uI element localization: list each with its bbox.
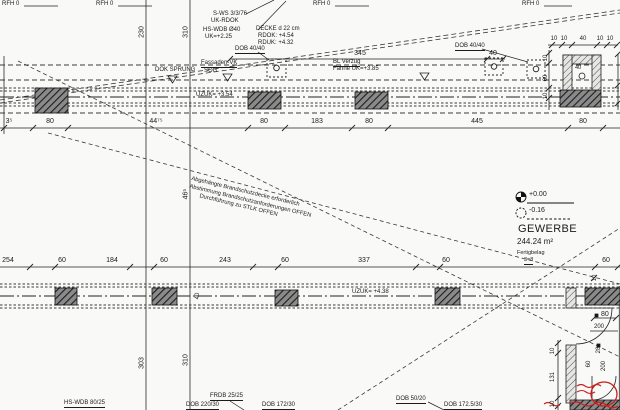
dim-bot-2: 184 <box>106 257 118 264</box>
dim-bot-0: 254 <box>2 257 14 264</box>
vdim-310-top: 310 <box>183 26 190 38</box>
fahne-uk-label: Fahne UK=+3.85 <box>333 66 379 72</box>
wall-band-upper <box>0 65 620 113</box>
dim-bot-3: 60 <box>160 257 168 264</box>
vdim-303: 303 <box>139 357 146 369</box>
fassaden-vk-label: Fassaden-VK <box>201 60 237 68</box>
vdim-cross-40: 40 <box>195 293 201 300</box>
column-detail-squares <box>267 58 545 78</box>
vdim-310-bot: 310 <box>183 354 190 366</box>
dim-top-5: 80 <box>365 118 373 125</box>
dim-bot-5: 60 <box>281 257 289 264</box>
level-zero-value: +0.00 <box>529 191 547 198</box>
dob4040-label-2: DOB 40/40 <box>455 43 485 51</box>
footer-label-dob50: DOB 50/20 <box>396 396 426 404</box>
room-area: 244.24 m² <box>517 238 553 246</box>
note-uk: UK=+2.25 <box>205 34 232 40</box>
note-decke: DECKE d 22 cm <box>256 26 300 32</box>
footer-label-dob220: DOB 220/30 <box>186 402 219 410</box>
dim-row-lower <box>0 264 620 270</box>
dim-top-7: 80 <box>579 118 587 125</box>
door-dim-80: 80 <box>601 311 609 318</box>
note-rdok: RDOK: +4.54 <box>258 33 294 39</box>
level-minus-value: -0.16 <box>529 207 545 214</box>
u-dim-10a: 10 <box>543 55 549 62</box>
dim-top-0: 3⁵ <box>6 118 13 125</box>
door-dim-60v: 60 <box>586 361 592 368</box>
dim-bot-6: 337 <box>358 257 370 264</box>
dim-bot-8: 60 <box>602 257 610 264</box>
dim-345: 345 <box>354 50 366 57</box>
dim-bot-4: 243 <box>219 257 231 264</box>
door-dim-10a: 10 <box>550 348 556 355</box>
note-hswdb: HS-WDB Ø40 <box>203 27 240 33</box>
dim-top-4: 183 <box>311 118 323 125</box>
dim-bot-7: 60 <box>442 257 450 264</box>
note-ukrdok: UK-RDOK <box>211 18 239 24</box>
dim-row-upper <box>0 125 620 131</box>
dim-40: 40 <box>489 50 497 57</box>
footer-label-hswdb: HS-WDB 80/25 <box>64 400 105 408</box>
dim-top-2: 44⁷⁵ <box>149 118 162 125</box>
chain-dim-3: 40 <box>580 36 587 42</box>
chain-dim-5: 10 <box>607 36 614 42</box>
room-code: 3=8 <box>524 257 533 265</box>
rfh-mark-4: RFH 0 <box>522 1 539 7</box>
construction-plan-canvas: RFH 0 RFH 0 RFH 0 RFH 0 S-WS 3/3/76 UK-R… <box>0 0 620 410</box>
door-dim-10c: 10 <box>592 275 598 282</box>
dim-top-3: 80 <box>260 118 268 125</box>
dim-line-345 <box>227 56 506 62</box>
door-dim-200v: 200 <box>601 361 607 371</box>
door-dim-131: 131 <box>550 372 556 382</box>
room-finish: Fertigbelag <box>517 250 545 256</box>
uzuk-upper-label: UZUK= +3.54 <box>196 92 233 98</box>
sog-label: SOG <box>204 68 217 74</box>
dim-top-1: 80 <box>46 118 54 125</box>
dim-top-6: 445 <box>471 118 483 125</box>
note-sws: S-WS 3/3/76 <box>213 11 247 17</box>
u-dim-10b: 10 <box>543 93 549 100</box>
dim-bot-1: 60 <box>58 257 66 264</box>
rfh-mark-3: RFH 0 <box>313 1 330 7</box>
datum-triangles <box>168 73 429 83</box>
rfh-mark-1: RFH 0 <box>2 1 19 7</box>
chain-dim-4: 10 <box>597 36 604 42</box>
uzuk-lower-label: UZUK= +4.38 <box>352 289 389 295</box>
footer-label-dob1725: DOB 172.5/30 <box>444 402 482 410</box>
vdim-230: 230 <box>139 26 146 38</box>
chain-dim-1: 10 <box>551 36 558 42</box>
chain-dim-2: 10 <box>561 36 568 42</box>
u-dim-60: 60 <box>543 75 549 82</box>
door-dim-200h: 200 <box>594 324 604 330</box>
door-dim-28: 28 <box>596 347 602 354</box>
footer-label-frdb: FRDB 25/25 <box>210 393 243 401</box>
door-dim-10b: 10 <box>550 401 556 408</box>
footer-label-dob172: DOB 172/30 <box>262 402 295 410</box>
rfh-mark-2: RFH 0 <box>96 1 113 7</box>
room-name: GEWERBE <box>518 224 577 235</box>
dob4040-label-1: DOB 40/40 <box>235 46 265 54</box>
dok-sprung-label: DOK SPRUNG <box>155 67 195 73</box>
u-dim-inner-40: 40 <box>575 65 581 71</box>
